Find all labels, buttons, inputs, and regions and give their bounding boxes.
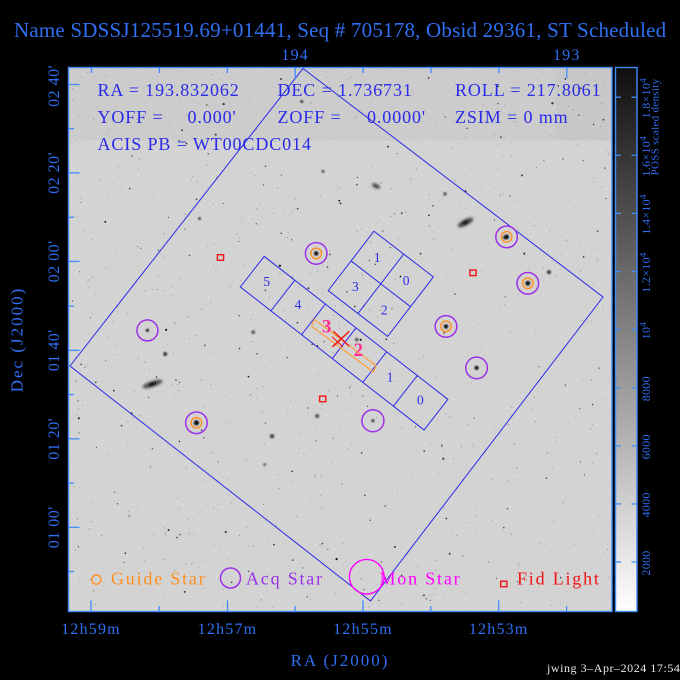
- svg-text:01 00': 01 00': [46, 506, 63, 548]
- svg-text:DEC = 1.736731: DEC = 1.736731: [278, 80, 413, 100]
- svg-text:RA = 193.832062: RA = 193.832062: [98, 80, 240, 100]
- svg-text:12h55m: 12h55m: [333, 621, 393, 638]
- svg-text:12h57m: 12h57m: [198, 621, 258, 638]
- svg-text:12h59m: 12h59m: [61, 621, 121, 638]
- svg-text:2000: 2000: [639, 550, 653, 575]
- svg-text:02 40': 02 40': [46, 65, 63, 107]
- svg-text:8000: 8000: [639, 376, 653, 401]
- svg-text:194: 194: [281, 47, 309, 64]
- svg-text:0.000': 0.000': [188, 107, 237, 127]
- svg-text:4000: 4000: [639, 492, 653, 517]
- svg-text:3: 3: [352, 279, 359, 294]
- svg-text:Dec (J2000): Dec (J2000): [8, 287, 27, 393]
- svg-text:Guide Star: Guide Star: [111, 569, 206, 589]
- svg-text:YOFF =: YOFF =: [98, 107, 164, 127]
- svg-text:5: 5: [263, 274, 270, 289]
- svg-text:0: 0: [417, 392, 424, 407]
- svg-text:1: 1: [374, 250, 381, 265]
- svg-text:6000: 6000: [639, 434, 653, 459]
- svg-text:0: 0: [403, 273, 410, 288]
- svg-text:12h53m: 12h53m: [469, 621, 529, 638]
- svg-text:0.0000': 0.0000': [367, 107, 426, 127]
- svg-text:01 20': 01 20': [46, 418, 63, 460]
- svg-text:ACIS PB = WT00CDC014: ACIS PB = WT00CDC014: [98, 134, 312, 154]
- svg-text:3: 3: [322, 316, 332, 337]
- svg-text:1.2×104: 1.2×104: [638, 252, 653, 293]
- svg-text:Acq Star: Acq Star: [246, 569, 324, 589]
- svg-text:POSS scaled density: POSS scaled density: [650, 78, 662, 175]
- svg-text:1.4×104: 1.4×104: [638, 194, 653, 235]
- svg-text:Mon Star: Mon Star: [380, 569, 462, 589]
- svg-text:ZOFF =: ZOFF =: [278, 107, 342, 127]
- svg-text:02 00': 02 00': [46, 240, 63, 282]
- svg-text:Name SDSSJ125519.69+01441, Seq: Name SDSSJ125519.69+01441, Seq # 705178,…: [14, 18, 667, 42]
- svg-text:01 40': 01 40': [46, 329, 63, 371]
- svg-text:jwing 3–Apr–2024 17:54: jwing 3–Apr–2024 17:54: [546, 661, 680, 675]
- svg-text:1: 1: [387, 370, 394, 385]
- svg-text:4: 4: [295, 297, 302, 312]
- svg-text:Fid Light: Fid Light: [517, 569, 601, 589]
- svg-text:02 20': 02 20': [46, 152, 63, 194]
- svg-text:2: 2: [354, 340, 364, 361]
- svg-text:2: 2: [381, 303, 388, 318]
- svg-text:ZSIM = 0 mm: ZSIM = 0 mm: [455, 107, 569, 127]
- svg-text:ROLL = 217.8061: ROLL = 217.8061: [455, 80, 601, 100]
- svg-text:193: 193: [553, 47, 581, 64]
- svg-text:RA (J2000): RA (J2000): [291, 651, 390, 670]
